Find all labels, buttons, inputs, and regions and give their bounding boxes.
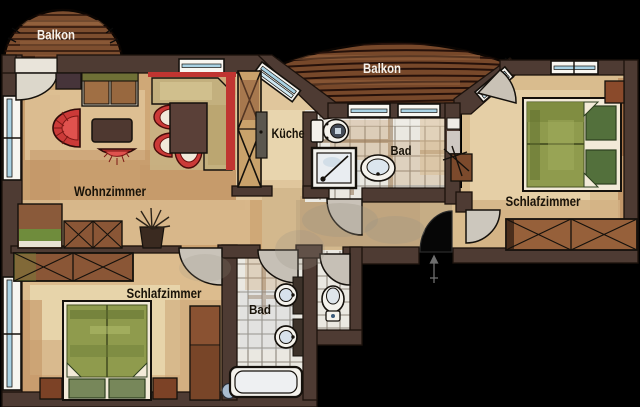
svg-text:Balkon: Balkon [37, 27, 75, 43]
svg-text:Schlafzimmer: Schlafzimmer [506, 194, 582, 209]
svg-text:Bad: Bad [391, 144, 412, 158]
svg-text:Bad: Bad [249, 303, 271, 317]
svg-text:Küche: Küche [272, 126, 305, 141]
svg-text:Wohnzimmer: Wohnzimmer [74, 184, 147, 199]
svg-text:Balkon: Balkon [363, 60, 401, 76]
svg-text:Schlafzimmer: Schlafzimmer [127, 286, 203, 301]
